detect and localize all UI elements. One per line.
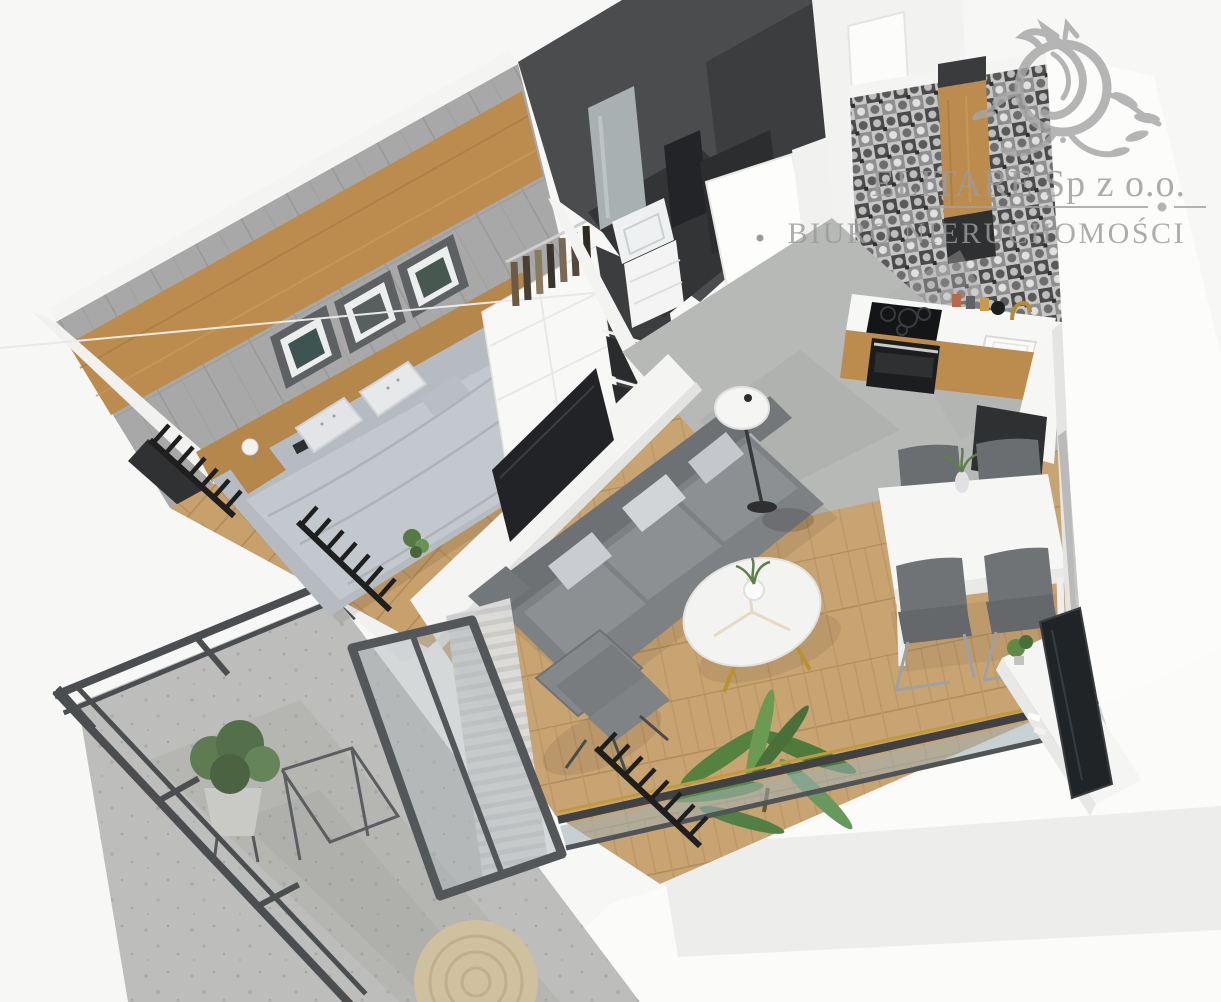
- dining-vase: [955, 471, 969, 493]
- watermark-subtitle: BIURO NIERUCHOMOŚCI: [788, 217, 1186, 250]
- kitchen-jar: [966, 296, 975, 309]
- floorplan-render: ELITARE Sp z o.o. BIURO NIERUCHOMOŚCI: [0, 0, 1221, 1002]
- apartment-3d-floorplan: ELITARE Sp z o.o. BIURO NIERUCHOMOŚCI: [0, 0, 1221, 1002]
- watermark-company: ELITARE Sp z o.o.: [871, 163, 1186, 205]
- kitchen-jar: [980, 298, 989, 311]
- kitchen-jar: [952, 294, 961, 307]
- kitchen-pot: [991, 301, 1005, 315]
- towel-radiator: [664, 130, 708, 228]
- table-lamp: [242, 439, 258, 455]
